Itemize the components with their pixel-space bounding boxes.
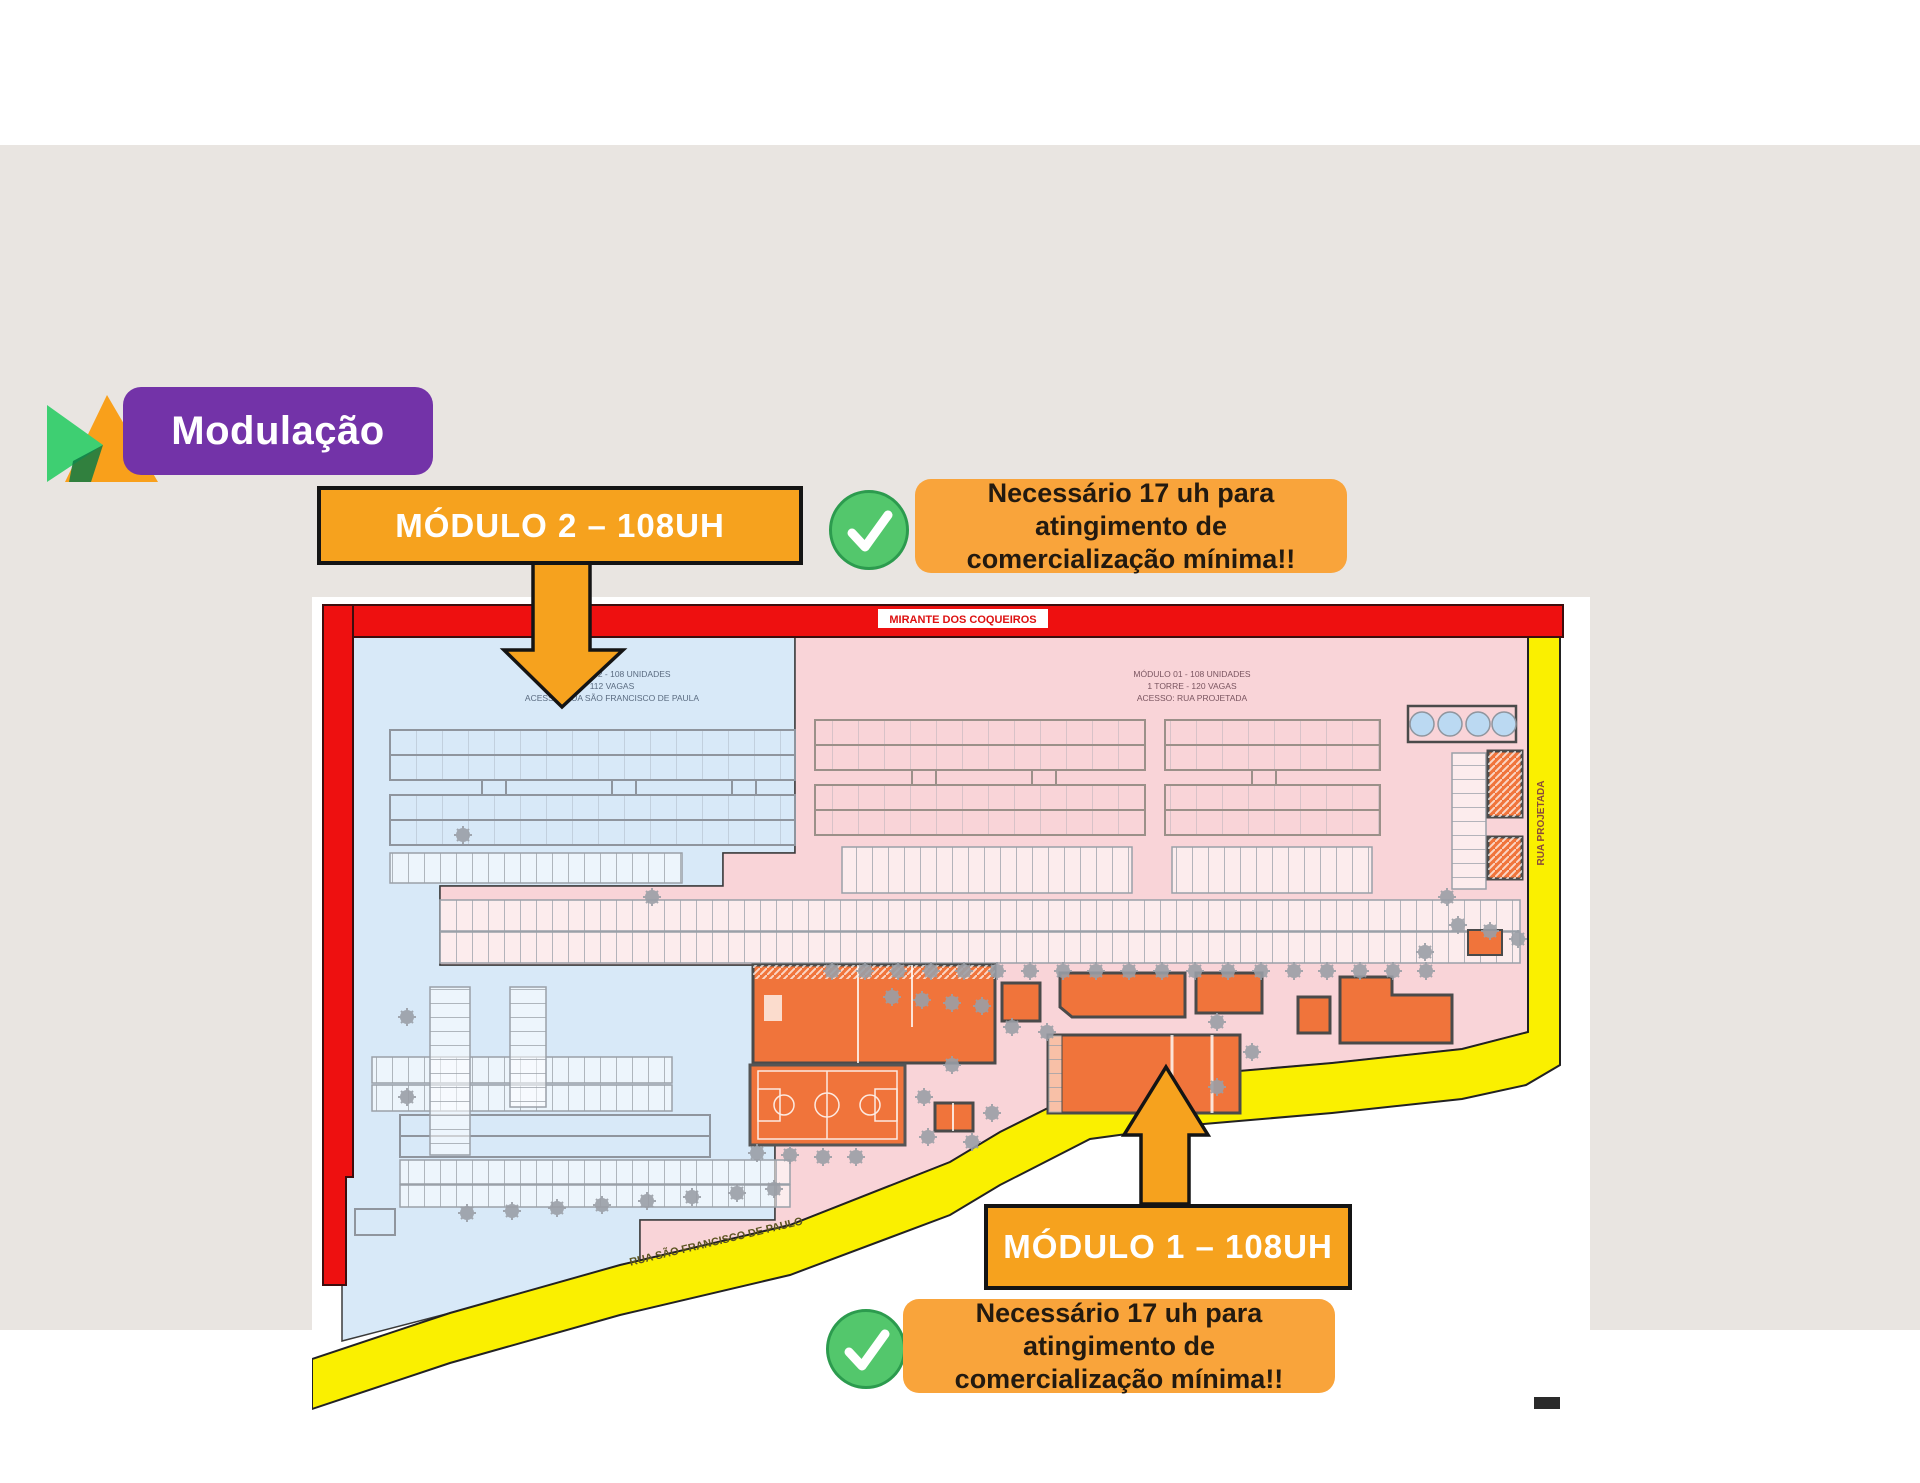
module1-annotation-2: 1 TORRE - 120 VAGAS (1147, 681, 1237, 691)
module1-arrow-up-icon (1118, 1063, 1214, 1208)
tank-circles (1408, 706, 1516, 742)
module2-callout-label: MÓDULO 2 – 108UH (395, 507, 725, 545)
site-plan: MIRANTE DOS COQUEIROS (312, 597, 1590, 1417)
module1-callout: MÓDULO 1 – 108UH (984, 1204, 1352, 1290)
page-title: Modulação (123, 387, 433, 475)
module1-annotation-3: ACESSO: RUA PROJETADA (1137, 693, 1248, 703)
note-bottom-line1: Necessário 17 uh para atingimento de (903, 1297, 1335, 1363)
note-top-line2: comercialização mínima!! (915, 543, 1347, 576)
note-bottom: Necessário 17 uh para atingimento de com… (903, 1299, 1335, 1393)
street-right-label: RUA PROJETADA (1536, 780, 1547, 865)
site-plan-drawing: MIRANTE DOS COQUEIROS (312, 597, 1590, 1417)
check-icon (826, 1309, 906, 1389)
note-top-line1: Necessário 17 uh para atingimento de (915, 477, 1347, 543)
street-top-label: MIRANTE DOS COQUEIROS (889, 614, 1036, 626)
sports-court (750, 1065, 905, 1145)
page-title-text: Modulação (171, 409, 384, 454)
check-icon (829, 490, 909, 570)
slide-canvas: Modulação (0, 145, 1920, 1330)
module1-callout-label: MÓDULO 1 – 108UH (1003, 1228, 1333, 1266)
module2-callout: MÓDULO 2 – 108UH (317, 486, 803, 565)
module2-arrow-down-icon (498, 561, 628, 711)
corner-mark (1534, 1397, 1560, 1409)
module1-annotation-1: MÓDULO 01 - 108 UNIDADES (1133, 669, 1250, 679)
note-bottom-line2: comercialização mínima!! (903, 1363, 1335, 1396)
note-top: Necessário 17 uh para atingimento de com… (915, 479, 1347, 573)
